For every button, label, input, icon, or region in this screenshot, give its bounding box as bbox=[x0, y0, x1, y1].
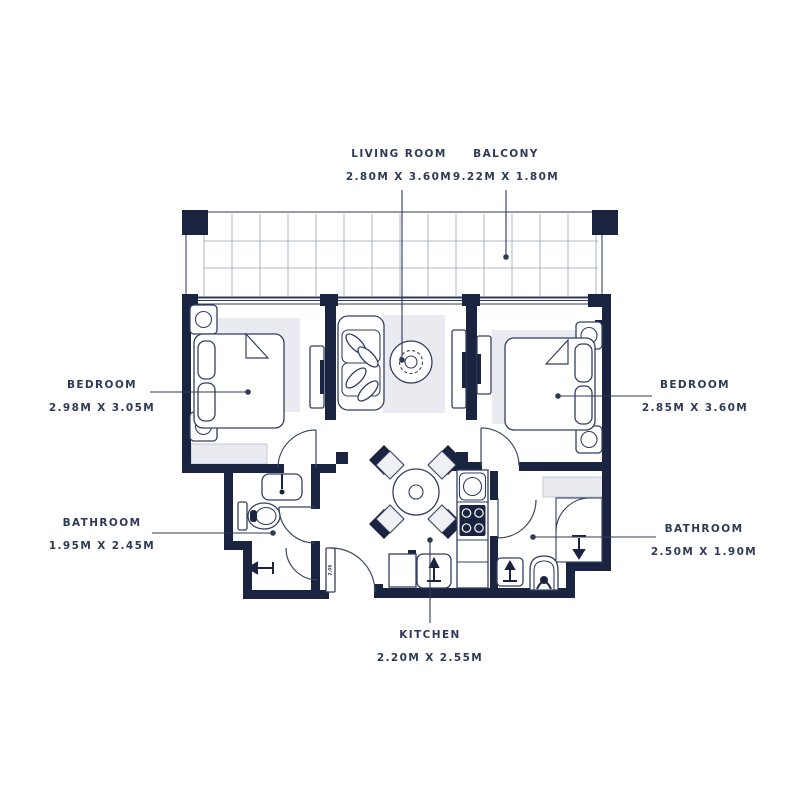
column-top-right bbox=[592, 210, 618, 235]
door-bathroom-right bbox=[498, 498, 536, 538]
door-bedroom-right bbox=[481, 428, 519, 466]
dining-table bbox=[393, 469, 439, 515]
living-room-label: LIVING ROOM bbox=[351, 148, 446, 160]
pillow bbox=[198, 383, 215, 421]
bathroom-right-closet bbox=[543, 477, 603, 497]
wall-right-exterior bbox=[602, 296, 611, 564]
kitchen-cabinet bbox=[389, 554, 416, 587]
bathroom-left-label: BATHROOM bbox=[63, 517, 142, 529]
kitchen-dims: 2.20M X 2.55M bbox=[377, 652, 483, 664]
bedroom-left-dims: 2.98M X 3.05M bbox=[49, 402, 155, 414]
bathroom-left-dims: 1.95M X 2.45M bbox=[49, 540, 155, 552]
balcony-dims: 9.22M X 1.80M bbox=[453, 171, 559, 183]
wall-bedroomR-bottom bbox=[519, 462, 602, 471]
entrance-door-tag: 2.06 bbox=[328, 564, 334, 575]
dining-chair bbox=[369, 445, 404, 479]
door-bathroom-left bbox=[279, 507, 315, 543]
toilet-tank bbox=[238, 502, 247, 530]
bathroom-right-dims: 2.50M X 1.90M bbox=[651, 546, 757, 558]
wall-bedroomL-living bbox=[325, 300, 336, 420]
bedroom-right-dims: 2.85M X 3.60M bbox=[642, 402, 748, 414]
bedroom-left-wardrobe bbox=[191, 444, 267, 464]
floor-plan: 2.06 LIVING ROOM 2.80M X 3.60M BALCONY 9… bbox=[0, 0, 800, 800]
door-entrance: 2.06 bbox=[326, 548, 375, 592]
pillow bbox=[198, 341, 215, 379]
toilet bbox=[530, 556, 558, 590]
nightstand bbox=[190, 305, 217, 334]
balcony-label: BALCONY bbox=[473, 148, 539, 160]
bedroom-left-label: BEDROOM bbox=[67, 379, 137, 391]
wall-bathroomL-left bbox=[224, 464, 233, 550]
coffee-table bbox=[390, 341, 432, 383]
bedroom-right-label: BEDROOM bbox=[660, 379, 730, 391]
wall-living-bedroomR bbox=[466, 300, 477, 420]
pillow bbox=[575, 344, 592, 382]
door-bedroom-left bbox=[278, 430, 316, 468]
kitchen-label: KITCHEN bbox=[399, 629, 460, 641]
dining-set bbox=[369, 445, 463, 539]
balcony-tile-grid bbox=[204, 214, 598, 296]
balcony bbox=[182, 210, 618, 298]
bathroom-right-label: BATHROOM bbox=[665, 523, 744, 535]
dining-chair bbox=[369, 505, 404, 539]
pillow bbox=[575, 386, 592, 424]
shower-arrow-icon bbox=[572, 536, 586, 558]
floor-plan-svg: 2.06 LIVING ROOM 2.80M X 3.60M BALCONY 9… bbox=[0, 0, 800, 800]
living-room-dims: 2.80M X 3.60M bbox=[346, 171, 452, 183]
column-top-left bbox=[182, 210, 208, 235]
bathroom-right-fixtures bbox=[497, 498, 602, 590]
